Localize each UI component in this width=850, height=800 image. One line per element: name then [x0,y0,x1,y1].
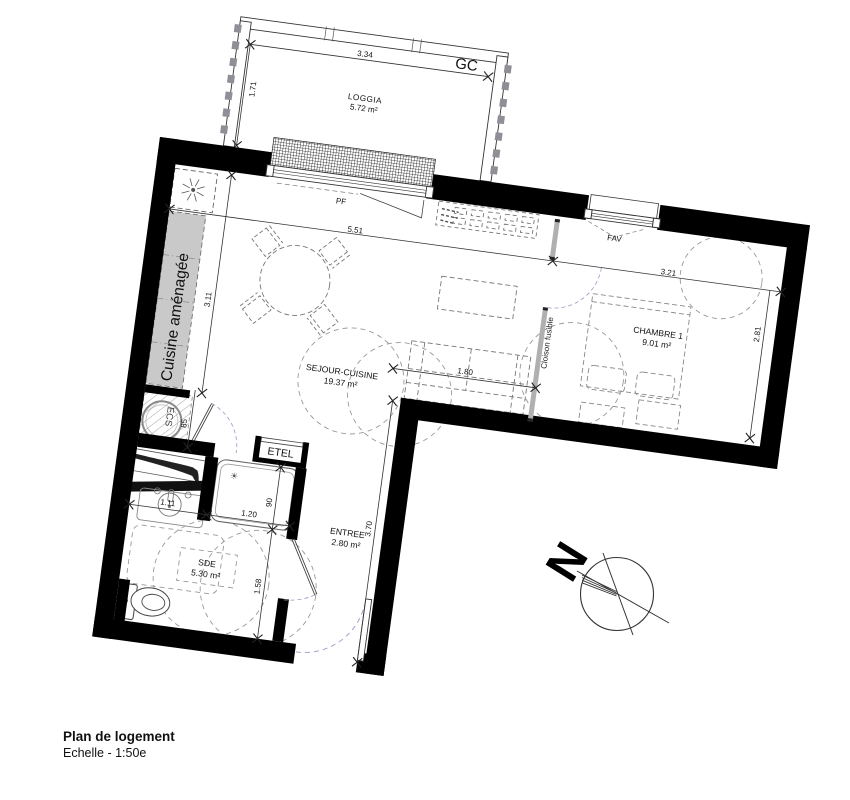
svg-text:☀: ☀ [229,471,238,482]
svg-text:GC: GC [454,55,479,75]
svg-text:90: 90 [264,497,274,508]
svg-text:PF: PF [335,196,346,206]
svg-text:Plan de logement: Plan de logement [63,729,175,744]
svg-text:85: 85 [179,418,189,429]
svg-text:Echelle - 1:50e: Echelle - 1:50e [63,746,146,760]
